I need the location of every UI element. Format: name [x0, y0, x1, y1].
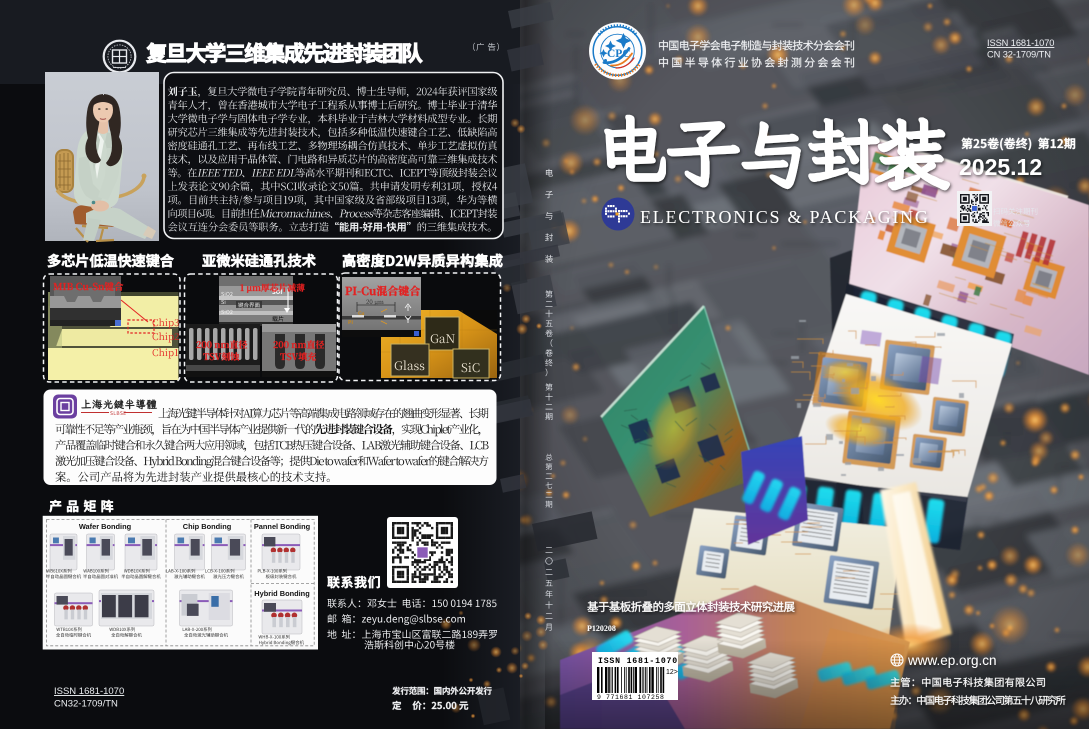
svg-text:Chip Bonding: Chip Bonding: [183, 522, 232, 531]
svg-text:CN 32-1709/TN: CN 32-1709/TN: [987, 50, 1051, 60]
svg-text:ISSN 1681-1070: ISSN 1681-1070: [598, 657, 678, 666]
svg-text:CN32-1709/TN: CN32-1709/TN: [54, 699, 118, 710]
svg-text:Wafer Bonding: Wafer Bonding: [79, 522, 132, 531]
svg-text:Pannel Bonding: Pannel Bonding: [254, 522, 311, 531]
svg-text:Hybrid Bonding: Hybrid Bonding: [254, 589, 310, 598]
svg-text:ELECTRONICS & PACKAGING: ELECTRONICS & PACKAGING: [640, 207, 930, 227]
svg-text:www.ep.org.cn: www.ep.org.cn: [907, 653, 997, 668]
svg-text:ISSN 1681-1070: ISSN 1681-1070: [987, 38, 1054, 48]
svg-text:P120208: P120208: [587, 624, 616, 633]
svg-text:9 771681 107258: 9 771681 107258: [597, 694, 665, 701]
svg-text:12>: 12>: [666, 669, 678, 676]
svg-text:2025.12: 2025.12: [959, 154, 1042, 180]
svg-text:ISSN 1681-1070: ISSN 1681-1070: [54, 686, 124, 697]
